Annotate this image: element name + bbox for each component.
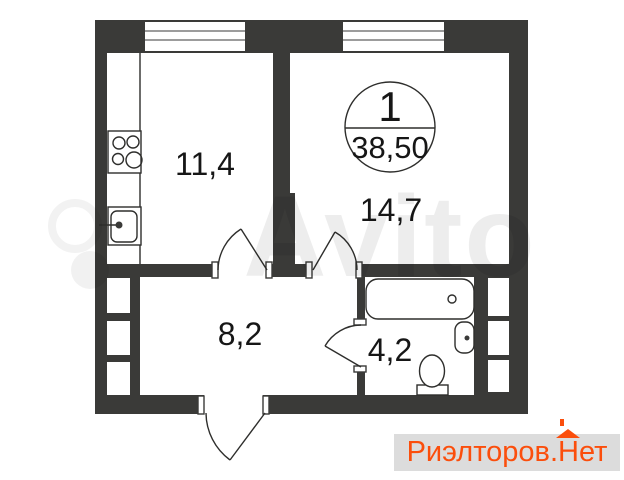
- entrance-door: [206, 413, 265, 460]
- wall-bath-left-upper: [357, 277, 365, 320]
- bathtub: [366, 279, 474, 319]
- kitchen-door: [218, 229, 267, 270]
- avito-logo-ring-watermark: [48, 199, 102, 253]
- site-watermark-house-letter: Н: [558, 436, 579, 469]
- wall-right: [509, 53, 528, 265]
- toilet: [417, 355, 448, 395]
- duct-shaft-left: [95, 265, 140, 398]
- kitchen-area-label: 11,4: [175, 146, 235, 182]
- living-room-area-label: 14,7: [360, 192, 422, 228]
- wall-stub-between-doors: [267, 264, 312, 277]
- sink-faucet: [465, 336, 470, 341]
- window-kitchen: [145, 22, 245, 51]
- floorplan-image: 1 38,50 11,4 14,7 8,2 4,2 Avito Риэлторо…: [0, 0, 624, 480]
- avito-logo-dot-watermark: [71, 251, 109, 289]
- site-watermark-suffix: ет: [579, 436, 607, 469]
- site-watermark-prefix: Риэлторов.: [407, 436, 558, 469]
- hallway-area-label: 8,2: [218, 316, 262, 352]
- bathroom-door: [325, 325, 361, 367]
- wall-divider-upper: [273, 53, 290, 194]
- unit-info-badge: 1 38,50: [345, 82, 435, 172]
- site-watermark: Риэлторов.Нет: [394, 434, 620, 471]
- total-area-label: 38,50: [351, 130, 429, 165]
- faucet-knob: [116, 222, 123, 229]
- living-room-door: [313, 232, 357, 270]
- stove: [108, 131, 142, 173]
- bathroom-area-label: 4,2: [368, 332, 412, 368]
- house-chimney-icon: [560, 419, 564, 426]
- walls: [95, 20, 528, 414]
- duct-shaft-right: [474, 264, 528, 414]
- house-roof-icon: [556, 429, 580, 438]
- window-living-room: [343, 22, 444, 51]
- room-count-label: 1: [378, 83, 401, 130]
- wall-divider-lower: [273, 193, 295, 265]
- toilet-bowl: [420, 355, 445, 387]
- bathroom-sink: [455, 322, 474, 353]
